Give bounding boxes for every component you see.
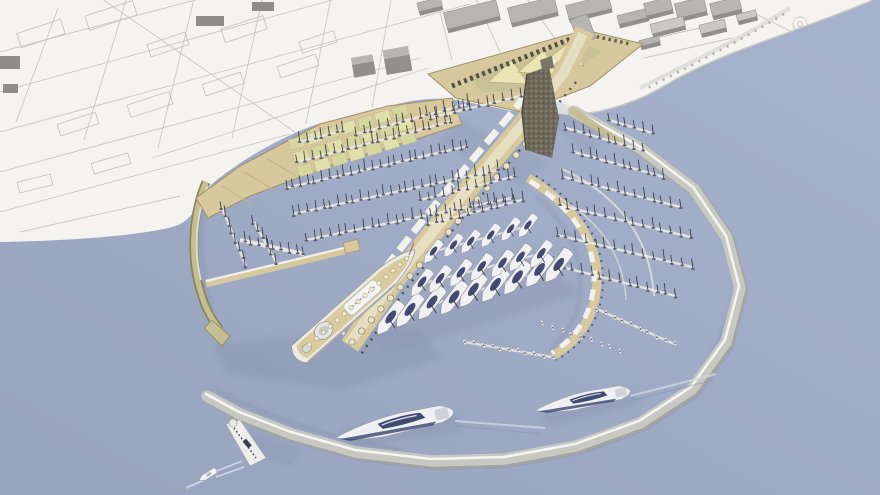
sailboat-hull [306,210,310,212]
sailboat-hull [510,99,514,101]
sailboat-hull [466,214,470,216]
sailboat-hull [613,248,617,250]
sailboat-hull [636,286,640,288]
sailboat-hull [393,163,397,165]
sailboat-hull [421,185,425,187]
sailboat-hull [438,152,442,154]
sailboat-hull [362,228,366,230]
sailboat-hull [691,268,695,270]
sailboat-hull [472,211,476,213]
motorboat-cockpit [614,317,616,319]
sailboat-hull [566,208,570,210]
sailboat-hull [513,201,517,203]
sailboat-hull [607,189,611,191]
return-pier-cap [229,419,237,427]
sailboat-hull [633,195,637,197]
sailboat-hull [358,171,362,173]
sailboat-hull [377,225,381,227]
sailboat-hull [662,178,666,180]
sailboat-hull [387,223,391,225]
sailboat-hull [422,157,426,159]
sailboat-hull [623,194,627,196]
sailboat-hull [305,240,309,242]
sailboat-hull [462,109,466,111]
sailboat-hull [219,208,223,210]
building-block [351,54,376,78]
motorboat-cockpit [562,329,564,331]
skylight-dot [407,273,413,279]
sailboat-hull [638,169,642,171]
sailboat-hull [398,135,402,137]
motorboat-cockpit [508,349,510,351]
sailboat-hull [420,217,424,219]
sailboat-hull [653,174,657,176]
sailboat-hull [392,138,396,140]
sailboat-hull [564,129,568,131]
sailboat-hull [238,249,242,251]
sailboat-hull [441,221,445,223]
sailboat-hull [333,151,337,153]
sailboat-hull [435,221,439,223]
sailboat-hull [396,223,400,225]
sailboat-hull [269,254,273,256]
sailboat-hull [320,237,324,239]
sailboat-hull [460,149,464,151]
sailboat-hull [647,173,651,175]
sailboat-hull [490,208,494,210]
sailboat-hull [402,220,406,222]
sailboat-hull [659,202,663,204]
sailboat-hull [689,237,693,239]
sailboat-hull [452,149,456,151]
sailboat-hull [353,231,357,233]
sailboat-hull [623,144,627,146]
sailboat-hull [243,267,247,269]
sailboat-hull [561,178,565,180]
marina-render-viewport [0,0,880,495]
sailboat-hull [595,245,599,247]
sailboat-hull [229,232,233,234]
sailboat-hull [328,177,332,179]
sailboat-hull [442,195,446,197]
sailboat-hull [487,203,491,205]
sailboat-hull [395,124,399,126]
sailboat-hull [411,217,415,219]
sailboat-hull [589,157,593,159]
sailboat-hull [307,182,311,184]
sailboat-hull [643,197,647,199]
sailboat-hull [325,154,329,156]
sailboat-hull [603,246,607,248]
sailboat-hull [429,214,433,216]
sailboat-hull [426,224,430,226]
sailboat-hull [664,293,668,295]
sailboat-hull [564,236,568,238]
sailboat-hull [495,207,499,209]
sailboat-hull [344,231,348,233]
sailboat-hull [459,209,463,211]
sailboat-hull [306,141,310,143]
skylight-dot [445,229,451,235]
sailboat-hull [603,215,607,217]
sailboat-hull [457,177,461,179]
sailboat-hull [449,122,453,124]
motorboat-cockpit [619,350,621,352]
sailboat-hull [474,174,478,176]
sailboat-hull [586,213,590,215]
sailboat-hull [521,201,525,203]
sailboat-hull [631,224,635,226]
sailboat-hull [314,138,318,140]
sailboat-hull [425,114,429,116]
sailboat-hull [451,180,455,182]
sailboat-hull [580,273,584,275]
sailboat-hull [429,119,433,121]
skylight-dot [349,339,355,345]
sailboat-hull [303,161,307,163]
sailboat-hull [354,135,358,137]
sailboat-hull [590,184,594,186]
sailboat-hull [656,291,660,293]
sailboat-hull [435,125,439,127]
sailboat-hull [646,290,650,292]
sailboat-hull [363,169,367,171]
sailboat-hull [616,190,620,192]
sailboat-hull [379,166,383,168]
sailboat-hull [483,185,487,187]
motorboat-cockpit [674,342,676,344]
sailboat-hull [319,137,323,139]
sailboat-hull [319,157,323,159]
sailboat-hull [574,240,578,242]
sailboat-hull [493,200,497,202]
sailboat-hull [419,199,423,201]
sailboat-hull [406,132,410,134]
sailboat-hull [337,204,341,206]
sailboat-hull [674,297,678,299]
sailboat-hull [422,128,426,130]
sailboat-hull [598,137,602,139]
sailboat-hull [613,163,617,165]
sailboat-hull [443,182,447,184]
sailboat-hull [486,105,490,107]
sailboat-hull [642,131,646,133]
sailboat-hull [261,237,265,239]
sailboat-hull [593,214,597,216]
sailboat-hull [350,174,354,176]
sailboat-hull [651,227,655,229]
sailboat-hull [571,179,575,181]
sailboat-hull [465,146,469,148]
sailboat-hull [584,241,588,243]
sailboat-hull [481,211,485,213]
sailboat-hull [371,168,375,170]
sailboat-hull [604,162,608,164]
sailboat-hull [617,124,621,126]
motorboat-cockpit [499,348,501,350]
sailboat-hull [466,189,470,191]
skylight-dot [358,328,364,334]
motorboat-cockpit [524,352,526,354]
sailboat-hull [595,158,599,160]
sailboat-hull [580,183,584,185]
sailboat-hull [570,269,574,271]
sailboat-hull [433,196,437,198]
sailboat-hull [312,182,316,184]
sailboat-hull [292,215,296,217]
motorboat-cockpit [609,345,611,347]
sailboat-hull [291,185,295,187]
motorboat-cockpit [543,356,545,358]
skylight-dot [397,284,403,290]
sailboat-hull [367,199,371,201]
sailboat-hull [376,196,380,198]
motorboat-cockpit [552,356,554,358]
sailboat-hull [429,185,433,187]
sailboat-hull [338,234,342,236]
sailboat-hull [444,122,448,124]
sailboat-hull [623,252,627,254]
sailboat-hull [507,179,511,181]
skylight-dot [416,262,422,268]
sailboat-hull [607,141,611,143]
sailboat-hull [444,211,448,213]
motorboat-cockpit [621,320,623,322]
sailboat-hull [444,115,448,117]
sailboat-hull [624,221,628,223]
small-gray-building [3,84,18,93]
sailboat-hull [633,127,637,129]
sailboat-hull [243,241,247,243]
sailboat-hull [323,207,327,209]
sailboat-hull [342,174,346,176]
sailboat-hull [299,185,303,187]
skylight-dot [368,317,374,323]
marina-aerial-render [0,0,880,495]
sailboat-hull [489,182,493,184]
sailboat-hull [224,215,228,217]
sailboat-hull [641,150,645,152]
sailboat-hull [558,204,562,206]
sailboat-hull [409,160,413,162]
sailboat-hull [458,217,462,219]
sailboat-hull [651,133,655,135]
sailboat-hull [465,177,469,179]
sailboat-hull [257,244,261,246]
motorboat-cockpit [646,331,648,333]
motorboat-cockpit [630,323,632,325]
sailboat-hull [653,201,657,203]
sailboat-hull [371,226,375,228]
sailboat-hull [669,232,673,234]
motorboat-cockpit [601,343,603,345]
sailboat-hull [390,193,394,195]
motorboat-cockpit [596,309,598,311]
sailboat-hull [256,230,260,232]
sailboat-hull [449,218,453,220]
sailboat-hull [488,172,492,174]
sailboat-hull [679,236,683,238]
sailboat-hull [351,201,355,203]
sailboat-hull [311,158,315,160]
sailboat-hull [453,112,457,114]
sailboat-hull [662,259,666,261]
sailboat-hull [496,169,500,171]
sailboat-hull [430,154,434,156]
sailboat-hull [288,252,292,254]
sailboat-hull [679,207,683,209]
motorboat-cockpit [580,336,582,338]
motorboat-cockpit [518,349,520,351]
sailboat-hull [346,148,350,150]
sailboat-hull [478,206,482,208]
sailboat-hull [414,131,418,133]
sailboat-hull [249,244,253,246]
sailboat-hull [345,202,349,204]
sailboat-hull [582,132,586,134]
sailboat-hull [443,152,447,154]
sailboat-hull [359,199,363,201]
sailboat-hull [427,128,431,130]
sailboat-hull [669,206,673,208]
sailboat-hull [398,191,402,193]
sailboat-hull [401,160,405,162]
sailboat-hull [376,141,380,143]
motorboat-cockpit [605,311,607,313]
sailboat-hull [457,189,461,191]
small-gray-building [0,56,20,69]
sailboat-hull [629,168,633,170]
sailboat-hull [498,179,502,181]
skylight-dot [513,152,519,158]
motorboat-cockpit [464,341,466,343]
motorboat-cockpit [492,345,494,347]
sailboat-hull [652,258,656,260]
sailboat-hull [410,120,414,122]
sailboat-hull [341,131,345,133]
sailboat-hull [384,138,388,140]
sailboat-hull [519,96,523,98]
sailboat-hull [320,180,324,182]
sailboat-hull [427,199,431,201]
sailboat-hull [556,235,560,237]
sailboat-hull [279,249,283,251]
sailboat-hull [580,155,584,157]
sailboat-hull [329,234,333,236]
sailboat-hull [641,226,645,228]
sailboat-hull [233,242,237,244]
sailboat-hull [475,186,479,188]
small-gray-building [196,16,224,26]
sailboat-hull [363,131,367,133]
motorboat-cockpit [541,322,543,324]
sailboat-hull [378,128,382,130]
sailboat-hull [614,143,618,145]
sailboat-hull [363,144,367,146]
sailboat-hull [301,253,305,255]
sailboat-hull [297,212,301,214]
sailboat-hull [457,106,461,108]
sailboat-hull [628,285,632,287]
motorboat-cockpit [552,327,554,329]
motorboat-cockpit [656,336,658,338]
motorboat-cockpit [473,342,475,344]
sailboat-hull [285,188,289,190]
sailboat-hull [371,141,375,143]
sailboat-hull [265,245,269,247]
sailboat-hull [590,274,594,276]
sailboat-hull [623,125,627,127]
sailboat-hull [607,120,611,122]
sailboat-hull [404,191,408,193]
sailboat-hull [314,239,318,241]
sailboat-hull [295,161,299,163]
sailboat-hull [412,188,416,190]
sailboat-hull [501,99,505,101]
skylight-dot [387,295,393,301]
sailboat-hull [492,102,496,104]
motorboat-cockpit [483,345,485,347]
sailboat-hull [435,116,439,118]
sailboat-hull [435,183,439,185]
sailboat-hull [453,209,457,211]
sailboat-hull [401,121,405,123]
sailboat-hull [469,206,473,208]
sailboat-hull [513,176,517,178]
skylight-dot [474,196,480,202]
sailboat-hull [419,117,423,119]
sailboat-hull [327,134,331,136]
sailboat-hull [631,253,635,255]
sailboat-hull [451,192,455,194]
sailboat-hull [641,257,645,259]
sailboat-hull [387,124,391,126]
sailboat-hull [354,147,358,149]
motorboat-cockpit [534,353,536,355]
sailboat-hull [571,152,575,154]
sailboat-hull [632,148,636,150]
sailboat-hull [670,263,674,265]
sailboat-hull [598,278,602,280]
sailboat-hull [328,207,332,209]
sailboat-hull [576,209,580,211]
sailboat-hull [336,177,340,179]
motorboat-cockpit [591,338,593,340]
sailboat-hull [608,279,612,281]
sailboat-hull [271,248,275,250]
sailboat-hull [589,136,593,138]
sailboat-hull [381,193,385,195]
sailboat-hull [597,185,601,187]
small-gray-building [252,2,274,11]
motorboat-cockpit [665,339,667,341]
sailboat-hull [314,210,318,212]
sailboat-hull [298,141,302,143]
sailboat-hull [414,157,418,159]
sailboat-hull [296,252,300,254]
sailboat-hull [659,231,663,233]
sailboat-hull [680,264,684,266]
motorboat-cockpit [570,334,572,336]
sailboat-hull [614,219,618,221]
sailboat-hull [387,165,391,167]
motorboat-cockpit [640,328,642,330]
building-block [382,46,412,75]
sailboat-hull [504,204,508,206]
sailboat-hull [622,167,626,169]
sailboat-hull [251,223,255,225]
sailboat-hull [341,151,345,153]
